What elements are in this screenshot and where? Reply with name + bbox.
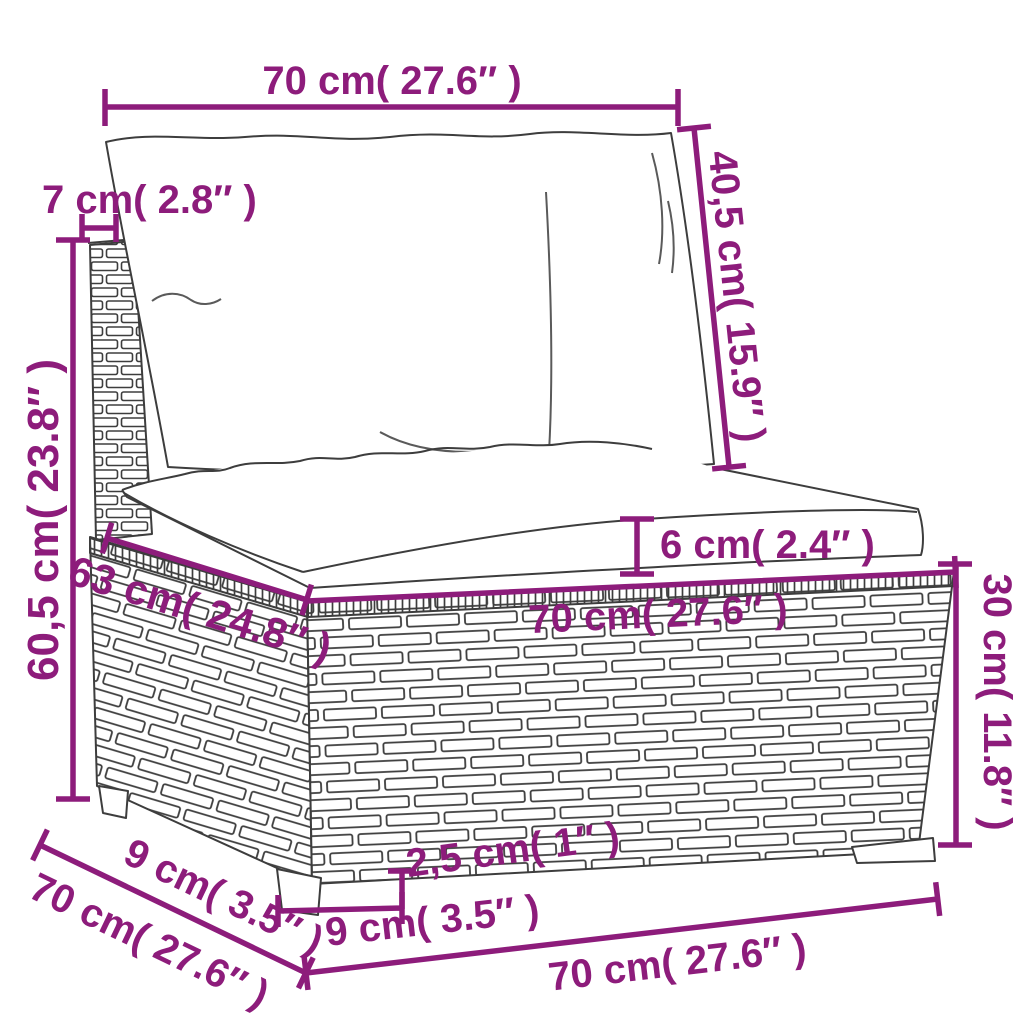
dim-label-base-width: 70 cm( 27.6″ ) [546,926,809,1000]
dim-label-cushion-thickness: 6 cm( 2.4″ ) [660,523,875,567]
dim-label-total-height: 60,5 cm( 23.8″ ) [19,359,68,681]
dim-label-front-foot-offset: 9 cm( 3.5″ ) [323,887,541,955]
dim-label-backrest-thickness: 7 cm( 2.8″ ) [42,178,257,222]
dimension-diagram-page: 70 cm( 27.6″ ) 7 cm( 2.8″ ) 40,5 cm( 15.… [0,0,1024,1024]
foot-back-left [99,786,128,818]
product-dimension-diagram: 70 cm( 27.6″ ) 7 cm( 2.8″ ) 40,5 cm( 15.… [0,0,1024,1024]
dim-label-base-height: 30 cm( 11.8″ ) [975,573,1019,830]
dim-label-top-width: 70 cm( 27.6″ ) [262,59,521,103]
